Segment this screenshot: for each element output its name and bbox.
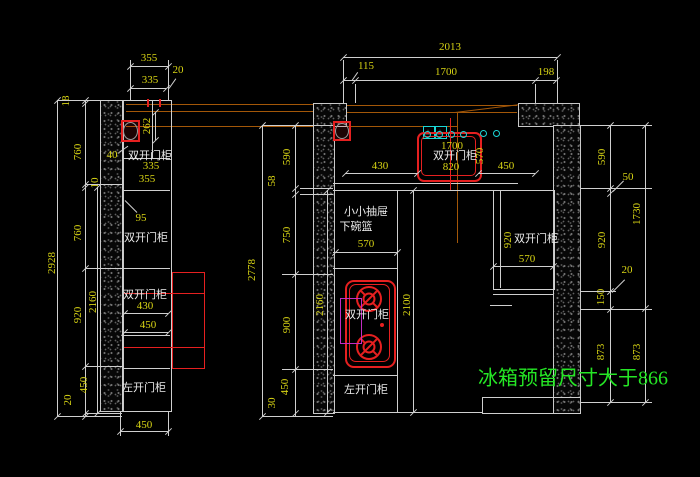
dim-590: 590	[281, 149, 293, 166]
cad-drawing-canvas[interactable]: 355 20 335 2928 18 760 10 760 920 450 20…	[0, 0, 700, 477]
dim-900: 900	[281, 317, 293, 334]
dim-58: 58	[266, 176, 278, 187]
duct-symbol	[121, 120, 140, 142]
dim-line	[343, 57, 557, 58]
extension-line	[580, 188, 652, 189]
dim-2100: 2100	[401, 294, 413, 316]
window-line	[345, 105, 517, 106]
extension-line	[168, 60, 169, 100]
dim-450: 450	[140, 319, 157, 331]
leader-40: 40	[107, 149, 118, 161]
dim-1730: 1730	[631, 203, 643, 225]
dim-430: 430	[372, 160, 389, 172]
extension-line	[580, 291, 616, 292]
extension-line	[580, 402, 652, 403]
dim-262: 262	[141, 118, 153, 135]
dim-450: 450	[78, 377, 90, 394]
dim-750: 750	[281, 227, 293, 244]
dim-line	[493, 266, 553, 267]
burner-center	[363, 341, 376, 354]
extension-line	[262, 416, 333, 417]
dim-line	[130, 66, 168, 67]
counter-edge	[397, 190, 398, 412]
red-dot	[380, 323, 384, 327]
extension-line	[535, 84, 536, 103]
dim-line	[85, 100, 86, 416]
wall-hatch	[313, 125, 335, 414]
extension-line	[85, 366, 122, 367]
extension-line	[355, 84, 356, 103]
extension-line	[85, 184, 122, 185]
dim-760: 760	[72, 144, 84, 161]
red-tick	[159, 99, 161, 107]
dim-570-cab: 570	[519, 253, 536, 265]
basket-label-line2: 下碗篮	[340, 218, 373, 234]
dim-820: 820	[443, 161, 460, 173]
faucet-hole-icon	[480, 130, 487, 137]
dim-line	[645, 125, 646, 402]
dim-30: 30	[266, 398, 278, 409]
cabinet-divider	[122, 190, 170, 191]
dim-450: 450	[279, 379, 291, 396]
cabinet-divider	[333, 375, 397, 376]
dim-430: 430	[137, 300, 154, 312]
dim-570-basket: 570	[358, 238, 375, 250]
dim-18: 18	[60, 96, 72, 107]
extension-line	[130, 60, 131, 100]
extension-line	[557, 60, 558, 103]
fridge-line	[124, 347, 204, 348]
cabinet-edge	[493, 294, 553, 295]
counter-edge	[333, 183, 518, 184]
dim-2160: 2160	[87, 291, 99, 313]
dim-line	[478, 173, 535, 174]
dim-355: 355	[139, 173, 156, 185]
dim-198: 198	[538, 66, 555, 78]
dim-line	[124, 313, 168, 314]
cabinet-edge	[490, 305, 512, 306]
faucet-hole-icon	[436, 131, 443, 138]
extension-line	[168, 412, 169, 436]
fridge-outline	[172, 272, 205, 369]
dim-355: 355	[141, 52, 158, 64]
dim-2928: 2928	[46, 252, 58, 274]
extension-line	[262, 125, 313, 126]
dim-920: 920	[596, 232, 608, 249]
dim-920-cab: 920	[502, 232, 514, 249]
dim-450: 450	[498, 160, 515, 172]
cabinet-divider	[122, 335, 170, 336]
red-tick	[147, 99, 149, 107]
dim-line	[343, 80, 556, 81]
cabinet-divider	[122, 268, 170, 269]
cabinet-label: 双开门柜	[124, 229, 168, 245]
dim-line	[327, 190, 328, 412]
dim-335: 335	[143, 160, 160, 172]
cabinet-divider	[500, 190, 501, 288]
leader-95: 95	[136, 212, 147, 224]
dim-570-sink: 570	[474, 148, 486, 165]
dim-20: 20	[173, 64, 184, 76]
dim-1700: 1700	[435, 66, 457, 78]
dim-335: 335	[142, 74, 159, 86]
dim-2778: 2778	[246, 259, 258, 281]
dim-20: 20	[62, 395, 74, 406]
dim-20: 20	[622, 264, 633, 276]
right-cabinet-label: 双开门柜	[514, 230, 558, 246]
bottom-wall-outline	[482, 397, 581, 414]
dim-line	[130, 88, 166, 89]
dim-873: 873	[631, 344, 643, 361]
cabinet-divider	[333, 268, 397, 269]
extension-line	[282, 369, 333, 370]
cabinet-divider	[333, 252, 397, 253]
faucet-hole-icon	[460, 131, 467, 138]
dim-tick	[532, 170, 539, 177]
dim-10: 10	[89, 178, 101, 189]
dim-line	[345, 173, 417, 174]
wall-hatch	[518, 103, 580, 127]
dim-line	[262, 125, 263, 416]
extension-line	[343, 60, 344, 103]
extension-line	[120, 412, 121, 436]
extension-line	[85, 413, 122, 414]
leader-line	[613, 181, 624, 192]
extension-line	[580, 309, 652, 310]
dim-line	[155, 112, 156, 140]
dim-2160: 2160	[314, 294, 326, 316]
dim-115: 115	[358, 60, 374, 72]
cabinet-bottom-line	[333, 412, 482, 413]
extension-line	[57, 416, 122, 417]
window-line	[345, 112, 517, 113]
dim-873: 873	[595, 344, 607, 361]
dim-50: 50	[623, 171, 634, 183]
extension-line	[300, 194, 333, 195]
dim-450-base: 450	[136, 419, 153, 431]
dim-920: 920	[72, 307, 84, 324]
cabinet-label: 左开门柜	[122, 379, 166, 395]
extension-line	[85, 268, 122, 269]
dim-590: 590	[596, 149, 608, 166]
extension-line	[580, 125, 652, 126]
dim-line	[610, 125, 611, 402]
duct-symbol	[333, 121, 351, 141]
dim-2013: 2013	[439, 41, 461, 53]
burner-center	[363, 293, 376, 306]
basket-label-line1: 小小抽屉	[344, 203, 388, 219]
faucet-hole-icon	[424, 131, 431, 138]
bottom-cabinet-label: 左开门柜	[344, 381, 388, 397]
dim-line	[120, 431, 168, 432]
dim-line	[124, 332, 168, 333]
dim-760: 760	[72, 225, 84, 242]
faucet-hole-icon	[493, 130, 500, 137]
extension-line	[282, 274, 333, 275]
cabinet-divider	[122, 368, 170, 369]
fridge-note-text: 冰箱预留尺寸大于866	[478, 362, 668, 391]
extension-line	[57, 100, 122, 101]
stove-cabinet-label: 双开门柜	[345, 306, 389, 322]
dim-line	[295, 125, 296, 416]
leader-line	[169, 78, 177, 88]
dim-line	[413, 190, 414, 412]
